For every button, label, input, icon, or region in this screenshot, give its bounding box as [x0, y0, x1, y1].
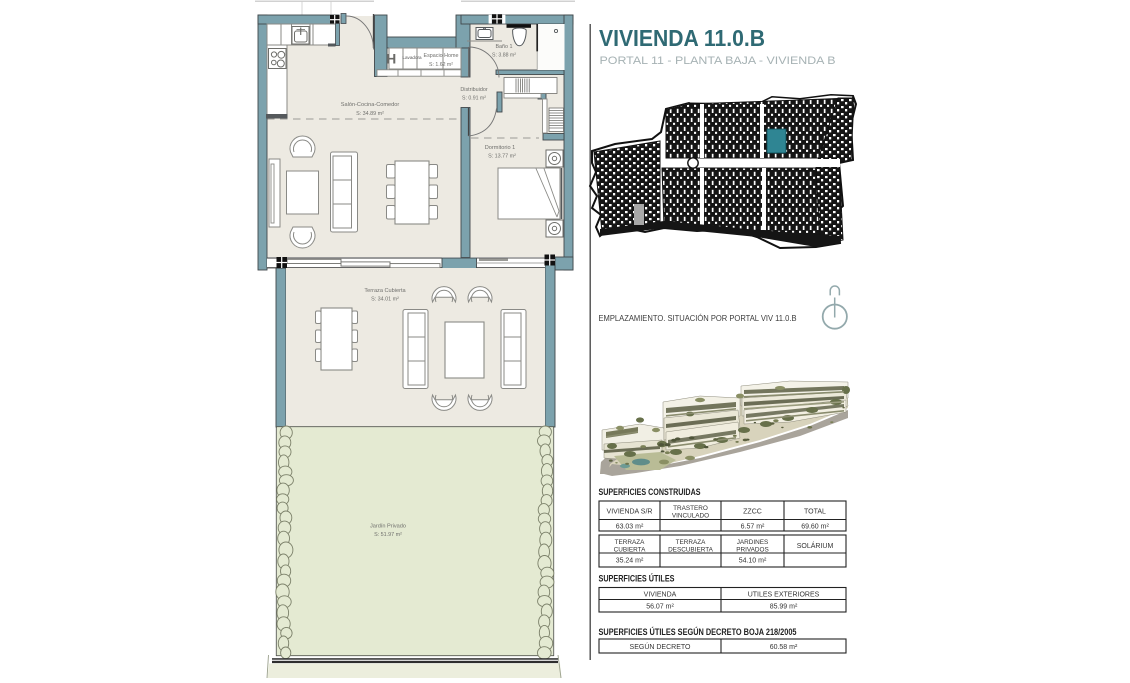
- svg-text:Espacio Home: Espacio Home: [423, 53, 458, 59]
- svg-text:H: H: [386, 51, 396, 67]
- svg-text:S: 34.89 m²: S: 34.89 m²: [356, 111, 384, 117]
- svg-text:S: 51.97 m²: S: 51.97 m²: [374, 532, 402, 538]
- svg-text:SUPERFICIES ÚTILES SEGÚN DECRE: SUPERFICIES ÚTILES SEGÚN DECRETO BOJA 21…: [599, 626, 797, 637]
- svg-text:Terraza Cubierta: Terraza Cubierta: [364, 288, 406, 294]
- svg-text:Jardín Privado: Jardín Privado: [370, 524, 406, 530]
- svg-text:69.60 m²: 69.60 m²: [801, 524, 829, 531]
- svg-text:S: 3.88 m²: S: 3.88 m²: [492, 53, 516, 59]
- svg-text:TERRAZA: TERRAZA: [615, 539, 646, 546]
- svg-text:JARDINES: JARDINES: [737, 539, 769, 546]
- svg-text:Distribuidor: Distribuidor: [460, 87, 487, 93]
- svg-text:Dormitorio 1: Dormitorio 1: [485, 145, 515, 151]
- svg-text:Lavadora: Lavadora: [402, 55, 422, 60]
- svg-text:TOTAL: TOTAL: [804, 509, 826, 516]
- svg-text:63.03 m²: 63.03 m²: [616, 524, 644, 531]
- svg-text:60.58 m²: 60.58 m²: [770, 644, 798, 651]
- svg-text:PORTAL 11 - PLANTA BAJA - VIVI: PORTAL 11 - PLANTA BAJA - VIVIENDA B: [600, 55, 836, 67]
- svg-text:S: 0.91 m²: S: 0.91 m²: [462, 96, 486, 102]
- svg-text:ZZCC: ZZCC: [743, 509, 762, 516]
- svg-text:54.10 m²: 54.10 m²: [739, 558, 767, 565]
- svg-text:SUPERFICIES ÚTILES: SUPERFICIES ÚTILES: [599, 573, 675, 584]
- svg-text:DESCUBIERTA: DESCUBIERTA: [668, 547, 714, 554]
- svg-text:SOLÁRIUM: SOLÁRIUM: [797, 541, 834, 550]
- svg-text:Salón-Cocina-Comedor: Salón-Cocina-Comedor: [341, 102, 400, 108]
- svg-text:35.24 m²: 35.24 m²: [616, 558, 644, 565]
- svg-text:EMPLAZAMIENTO. SITUACIÓN POR P: EMPLAZAMIENTO. SITUACIÓN POR PORTAL VIV …: [599, 313, 797, 323]
- svg-text:VINCULADO: VINCULADO: [672, 513, 709, 520]
- svg-text:S: 1.62 m²: S: 1.62 m²: [429, 62, 453, 68]
- svg-text:PRIVADOS: PRIVADOS: [736, 547, 769, 554]
- svg-text:SUPERFICIES CONSTRUIDAS: SUPERFICIES CONSTRUIDAS: [599, 487, 701, 497]
- svg-text:UTILES EXTERIORES: UTILES EXTERIORES: [748, 592, 820, 599]
- svg-text:S: 34.01 m²: S: 34.01 m²: [371, 297, 399, 303]
- svg-text:CUBIERTA: CUBIERTA: [614, 547, 646, 554]
- svg-text:VIVIENDA S/R: VIVIENDA S/R: [607, 509, 653, 516]
- svg-text:VIVIENDA 11.0.B: VIVIENDA 11.0.B: [599, 25, 765, 51]
- svg-text:6.57 m²: 6.57 m²: [741, 524, 765, 531]
- svg-text:VIVIENDA: VIVIENDA: [644, 592, 677, 599]
- svg-text:85.99 m²: 85.99 m²: [770, 604, 798, 611]
- svg-text:Baño 1: Baño 1: [495, 44, 512, 50]
- svg-text:TRASTERO: TRASTERO: [673, 505, 708, 512]
- svg-text:SEGÚN DECRETO: SEGÚN DECRETO: [630, 642, 691, 651]
- svg-text:S: 13.77 m²: S: 13.77 m²: [488, 154, 516, 160]
- svg-text:56.07 m²: 56.07 m²: [646, 604, 674, 611]
- svg-text:TERRAZA: TERRAZA: [676, 539, 707, 546]
